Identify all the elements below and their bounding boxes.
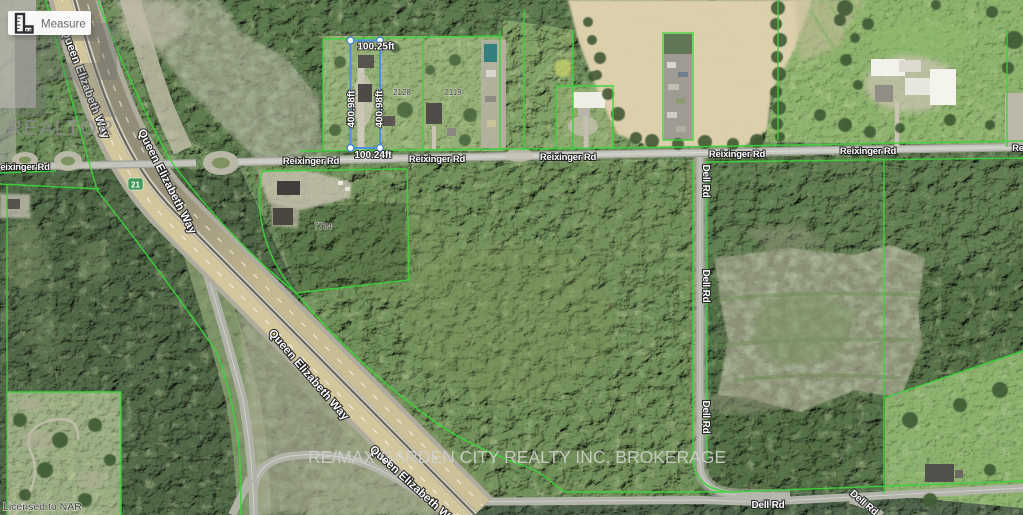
svg-text:REALTOR: REALTOR (7, 117, 115, 140)
svg-text:100.24ft: 100.24ft (354, 150, 392, 161)
svg-text:RE/MAX GARDEN CITY REALTY INC,: RE/MAX GARDEN CITY REALTY INC, BROKERAGE (308, 447, 726, 467)
svg-text:Licensed to NAR: Licensed to NAR (3, 501, 82, 513)
svg-text:400.98ft: 400.98ft (375, 90, 386, 128)
svg-text:Reixinger Rd: Reixinger Rd (409, 154, 466, 165)
svg-text:Reixinger Rd: Reixinger Rd (540, 152, 597, 163)
svg-text:2128: 2128 (393, 88, 411, 97)
svg-text:Re: Re (1012, 143, 1023, 154)
svg-text:Dell Rd: Dell Rd (700, 269, 711, 302)
svg-text:eixinger Rd: eixinger Rd (0, 162, 50, 173)
svg-text:Dell Rd: Dell Rd (700, 164, 711, 197)
svg-text:7724: 7724 (314, 222, 332, 231)
svg-text:Reixinger Rd: Reixinger Rd (709, 149, 766, 160)
svg-text:Dell Rd: Dell Rd (700, 400, 711, 433)
svg-text:400.98ft: 400.98ft (347, 90, 358, 128)
svg-text:100.25ft: 100.25ft (357, 42, 395, 53)
svg-text:21: 21 (131, 181, 140, 190)
svg-text:Measure: Measure (41, 19, 86, 31)
svg-text:Reixinger Rd: Reixinger Rd (283, 156, 340, 167)
svg-text:2119: 2119 (444, 88, 462, 97)
svg-text:Dell Rd: Dell Rd (751, 500, 784, 511)
svg-text:Reixinger Rd: Reixinger Rd (840, 146, 897, 157)
